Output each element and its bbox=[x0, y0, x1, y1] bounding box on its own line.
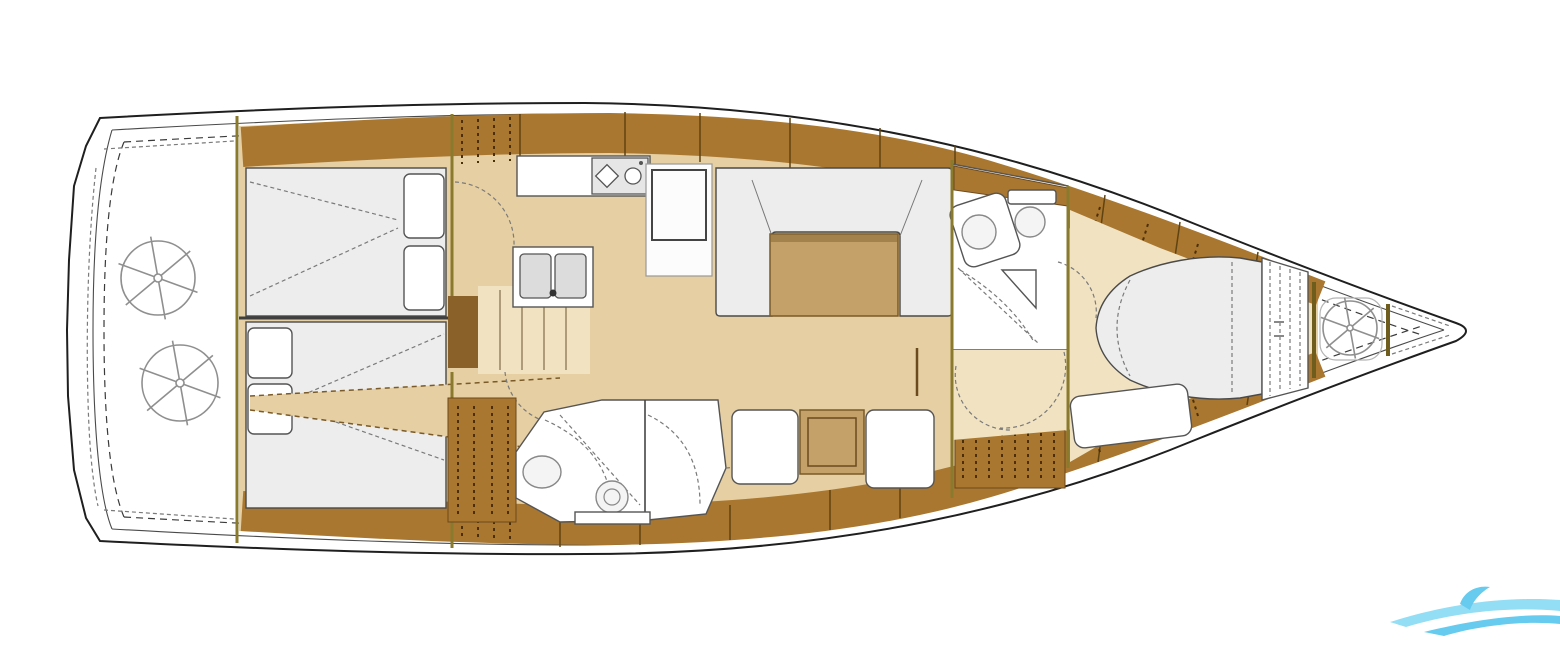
toilet bbox=[596, 481, 628, 513]
mast-step bbox=[448, 296, 478, 368]
washbasin bbox=[962, 215, 996, 249]
table-edge bbox=[770, 234, 898, 242]
stove-two-burner bbox=[592, 158, 648, 194]
headboard-shelf bbox=[1262, 258, 1308, 400]
chart-table bbox=[800, 410, 864, 474]
washbasin bbox=[523, 456, 561, 488]
aft-head-bathroom bbox=[448, 398, 726, 524]
seat-cushion bbox=[866, 410, 934, 488]
saloon-table bbox=[770, 234, 898, 316]
pillow bbox=[404, 174, 444, 238]
aft-head-cabinet bbox=[448, 398, 516, 522]
refrigerator bbox=[646, 164, 712, 276]
yacht-floorplan-page bbox=[0, 0, 1560, 657]
vanity-shelf bbox=[575, 512, 650, 524]
pillow bbox=[248, 328, 292, 378]
wave-watermark-logo bbox=[1390, 587, 1560, 636]
double-sink bbox=[513, 247, 593, 307]
floorplan-canvas bbox=[0, 0, 1560, 657]
seat-cushion bbox=[732, 410, 798, 484]
aft-cabin-port bbox=[246, 168, 446, 316]
pillow bbox=[404, 246, 444, 310]
